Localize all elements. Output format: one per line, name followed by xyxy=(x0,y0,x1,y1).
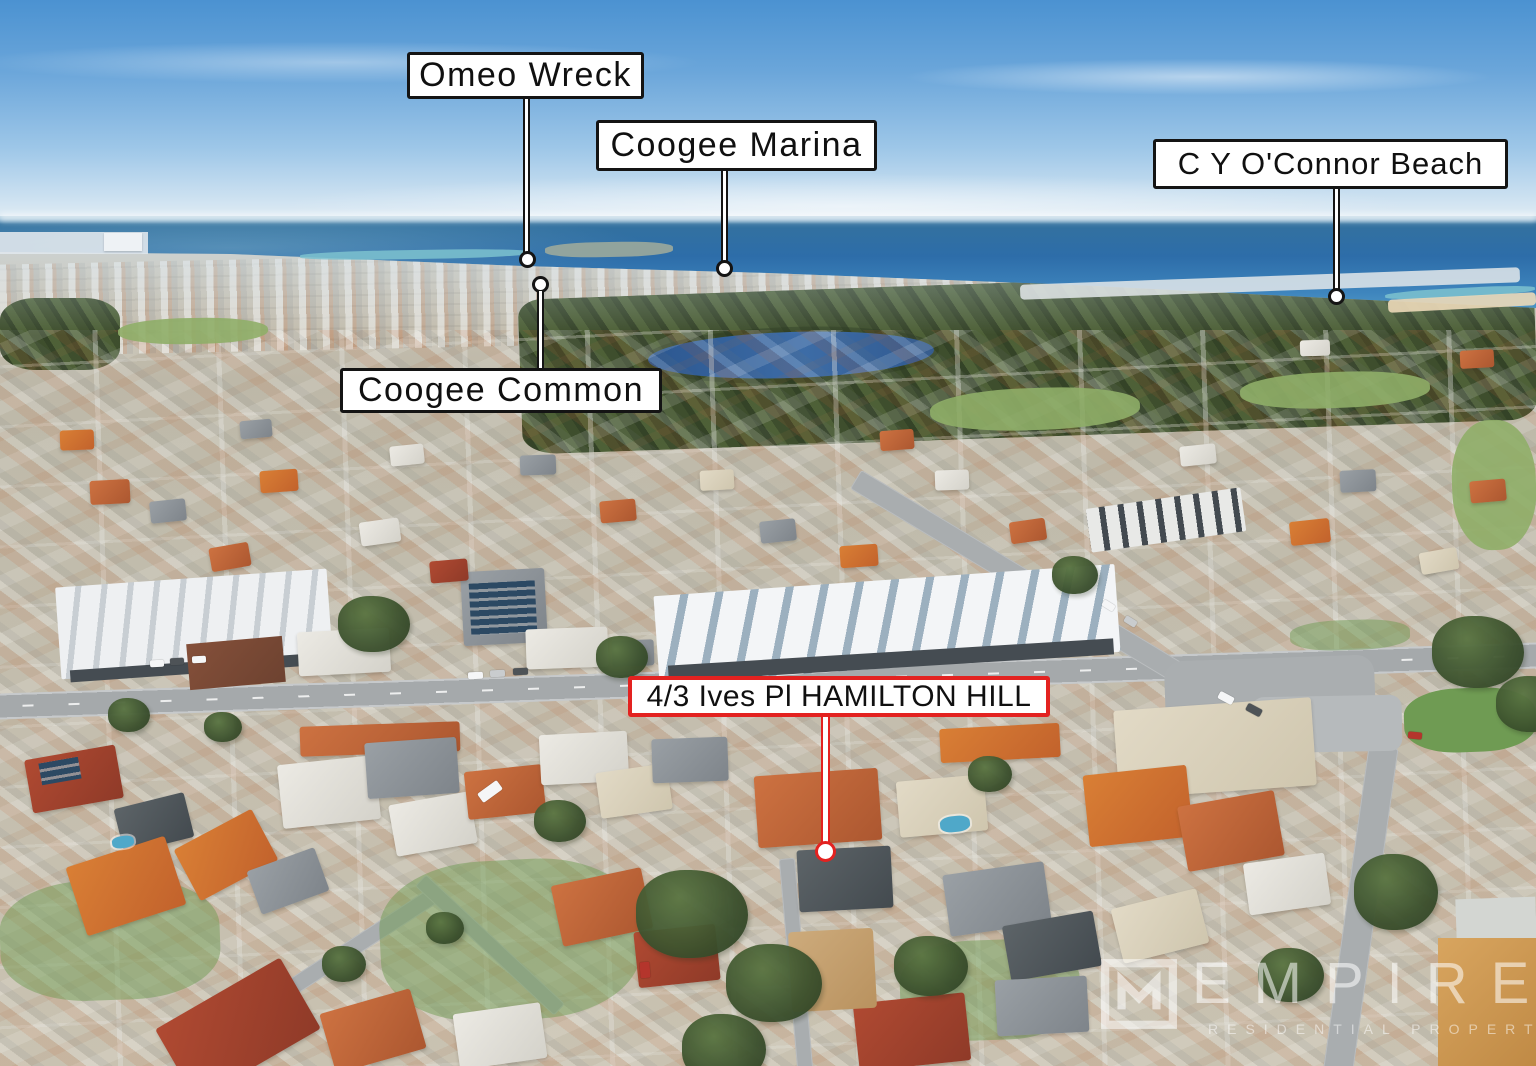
callout-dot-property xyxy=(815,841,836,862)
callout-box-property: 4/3 Ives Pl HAMILTON HILL xyxy=(628,676,1050,717)
scene-cd xyxy=(513,668,528,676)
scene-turq xyxy=(300,248,530,261)
scene-W xyxy=(388,791,478,856)
scene-cw xyxy=(192,656,206,664)
scene-cd xyxy=(170,658,184,666)
scene-RD xyxy=(429,558,469,583)
scene-rust xyxy=(186,636,286,690)
scene-O xyxy=(1460,349,1495,369)
aerial-photo: Omeo Wreck Coogee Marina C Y O'Connor Be… xyxy=(0,0,1536,1066)
scene-T xyxy=(726,944,822,1022)
scene-O xyxy=(1469,478,1507,503)
scene-O2 xyxy=(259,469,298,494)
scene-T xyxy=(534,800,586,842)
scene-O xyxy=(319,988,426,1066)
scene-O xyxy=(208,542,252,573)
scene-solar xyxy=(469,580,538,635)
scene-T xyxy=(108,698,150,732)
scene-W xyxy=(389,443,425,466)
scene-O2 xyxy=(939,723,1061,763)
scene-T xyxy=(338,596,410,652)
scene-O2 xyxy=(1083,765,1194,847)
scene-W xyxy=(1300,339,1331,356)
scene-L2 xyxy=(929,384,1140,433)
scene-T xyxy=(1354,854,1438,930)
scene-cg xyxy=(1123,615,1138,628)
scene-C xyxy=(1111,888,1210,964)
scene-O xyxy=(879,429,914,451)
callout-box-omeo-wreck: Omeo Wreck xyxy=(407,52,644,99)
callout-line-coogee-common xyxy=(537,291,544,370)
callout-box-coogee-common: Coogee Common xyxy=(340,368,662,413)
scene-town xyxy=(1086,487,1247,552)
scene-D xyxy=(796,846,893,913)
scene-head xyxy=(545,241,673,258)
scene-T xyxy=(682,1014,766,1066)
scene-T xyxy=(1258,948,1324,1002)
scene-O xyxy=(599,498,637,523)
scene-O xyxy=(89,479,130,505)
scene-T xyxy=(596,636,648,678)
scene-O xyxy=(464,764,547,820)
scene-W xyxy=(359,517,402,546)
scene-G xyxy=(239,419,272,440)
scene-S xyxy=(1438,938,1536,1066)
scene-bldg xyxy=(104,233,142,251)
scene-O2 xyxy=(1289,518,1331,546)
scene-cw xyxy=(468,672,483,680)
scene-W xyxy=(935,469,970,490)
callout-box-coogee-marina: Coogee Marina xyxy=(596,120,877,171)
scene-G xyxy=(364,737,460,799)
callout-label-coogee-common: Coogee Common xyxy=(358,371,644,410)
scene-T xyxy=(636,870,748,958)
scene-T xyxy=(322,946,366,982)
scene-T xyxy=(426,912,464,944)
scene-G xyxy=(1339,469,1376,493)
callout-label-omeo-wreck: Omeo Wreck xyxy=(419,56,632,95)
scene-T xyxy=(894,936,968,996)
scene-cr xyxy=(1408,731,1423,739)
callout-box-cy-oconnor-beach: C Y O'Connor Beach xyxy=(1153,139,1508,189)
scene-cr xyxy=(639,962,650,979)
scene-W xyxy=(1243,853,1331,916)
scene-O2 xyxy=(60,429,95,450)
callout-line-omeo-wreck xyxy=(523,97,530,253)
scene-cw xyxy=(150,660,164,668)
scene-T xyxy=(1432,616,1524,688)
callout-dot-omeo-wreck xyxy=(519,251,536,268)
scene-L2 xyxy=(118,317,268,346)
scene-L2 xyxy=(1239,369,1430,412)
scene-K xyxy=(1455,897,1536,942)
callout-line-coogee-marina xyxy=(721,169,728,262)
callout-line-property xyxy=(821,715,830,843)
scene-G xyxy=(651,737,728,784)
callout-dot-cy-oconnor-beach xyxy=(1328,288,1345,305)
scene-G xyxy=(995,976,1090,1037)
callout-label-cy-oconnor-beach: C Y O'Connor Beach xyxy=(1178,146,1483,182)
scene-C xyxy=(699,469,734,491)
scene-T xyxy=(968,756,1012,792)
scene-C xyxy=(1418,547,1459,575)
callout-label-coogee-marina: Coogee Marina xyxy=(611,126,863,165)
callout-line-cy-oconnor-beach xyxy=(1333,187,1340,290)
scene-T xyxy=(1052,556,1098,594)
scene-G xyxy=(759,518,797,544)
scene-W xyxy=(1179,443,1217,467)
scene-O xyxy=(1009,518,1048,545)
scene-O2 xyxy=(839,544,878,569)
scene-T xyxy=(204,712,242,742)
scene-O xyxy=(754,768,883,848)
scene-W xyxy=(453,1002,548,1066)
scene-G xyxy=(520,454,557,475)
callout-dot-coogee-marina xyxy=(716,260,733,277)
scene-cg xyxy=(490,670,505,678)
callout-label-property: 4/3 Ives Pl HAMILTON HILL xyxy=(647,680,1032,714)
scene-G xyxy=(149,498,187,524)
